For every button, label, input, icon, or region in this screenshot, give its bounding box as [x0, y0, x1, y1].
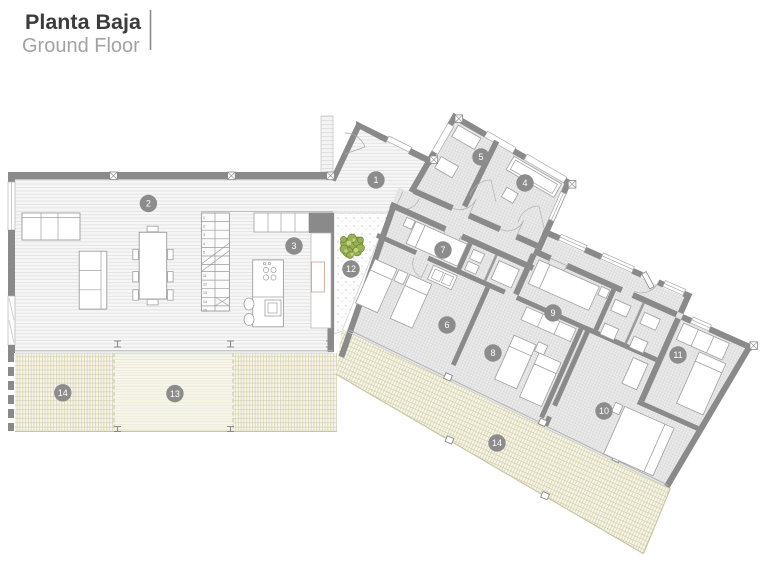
svg-text:12: 12: [203, 283, 207, 287]
svg-text:4: 4: [522, 178, 527, 188]
svg-text:15: 15: [203, 308, 207, 312]
svg-text:4: 4: [203, 242, 205, 246]
svg-text:11: 11: [673, 350, 682, 360]
svg-text:6: 6: [444, 320, 449, 330]
svg-text:Ground Floor: Ground Floor: [22, 35, 140, 57]
svg-text:9: 9: [550, 308, 555, 318]
svg-text:14: 14: [203, 300, 207, 304]
svg-text:12: 12: [346, 264, 356, 274]
svg-text:2: 2: [146, 199, 151, 209]
svg-text:14: 14: [492, 438, 502, 448]
svg-text:2: 2: [203, 225, 205, 229]
svg-text:10: 10: [599, 406, 609, 416]
svg-text:5: 5: [478, 152, 483, 162]
svg-text:8: 8: [490, 348, 495, 358]
svg-text:13: 13: [170, 389, 180, 399]
svg-text:13: 13: [203, 291, 207, 295]
svg-text:14: 14: [58, 388, 68, 398]
svg-text:3: 3: [203, 233, 205, 237]
svg-text:3: 3: [291, 241, 296, 251]
svg-text:7: 7: [440, 245, 445, 255]
svg-text:1: 1: [373, 175, 378, 185]
svg-text:5: 5: [203, 250, 205, 254]
svg-text:11: 11: [203, 274, 207, 278]
svg-text:1: 1: [203, 216, 205, 220]
svg-text:Planta Baja: Planta Baja: [25, 10, 142, 34]
